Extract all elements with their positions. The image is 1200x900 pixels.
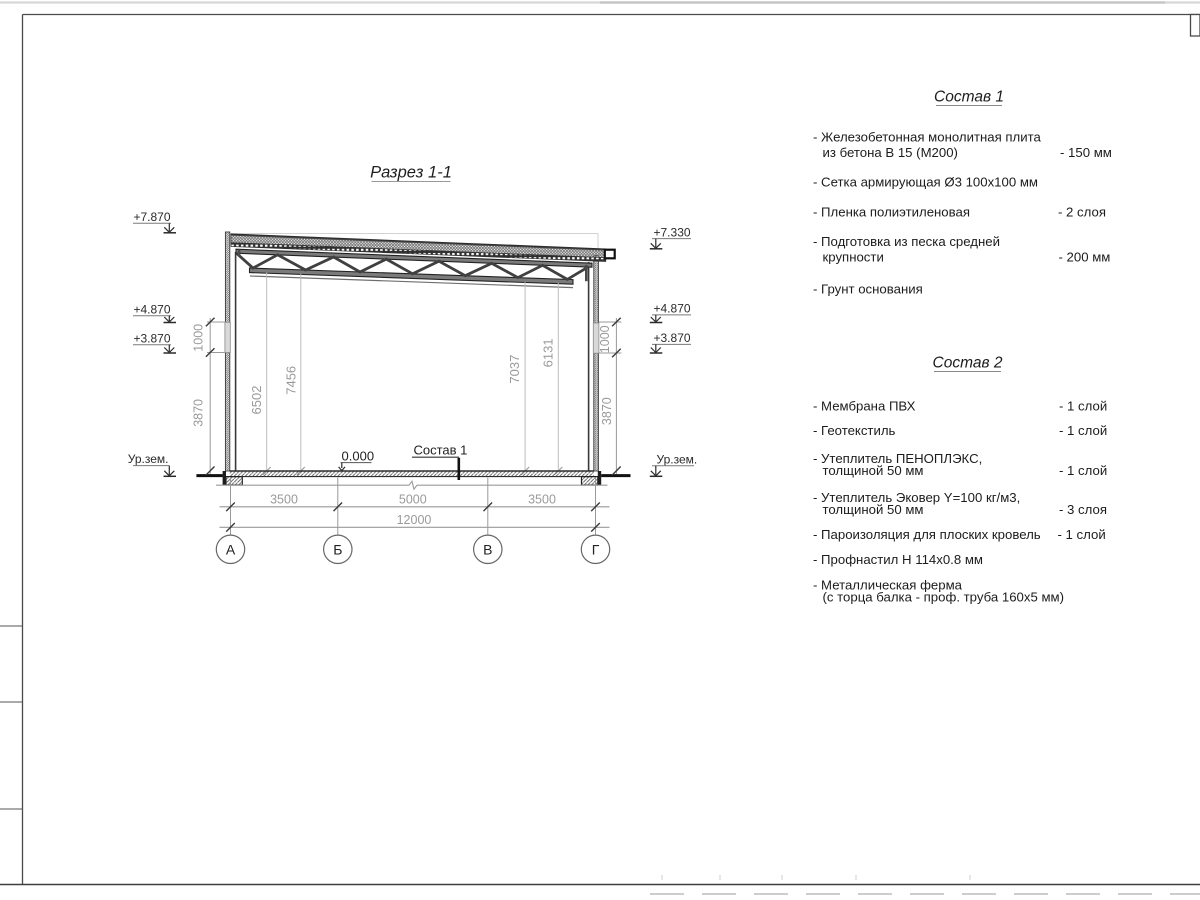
svg-text:1000: 1000 xyxy=(598,325,612,353)
svg-text:- Пленка полиэтиленовая: - Пленка полиэтиленовая xyxy=(813,205,970,220)
svg-text:Ур.зем.: Ур.зем. xyxy=(128,452,169,466)
svg-text:- Мембрана ПВХ: - Мембрана ПВХ xyxy=(813,398,916,413)
svg-text:В: В xyxy=(483,541,492,557)
svg-text:(с торца балка - проф. труба 1: (с торца балка - проф. труба 160х5 мм) xyxy=(823,590,1064,605)
svg-text:7456: 7456 xyxy=(283,366,298,395)
svg-text:+3.870: +3.870 xyxy=(654,331,691,345)
svg-text:- 1 слой: - 1 слой xyxy=(1059,463,1107,478)
svg-text:12000: 12000 xyxy=(397,513,432,527)
svg-text:+3.870: +3.870 xyxy=(133,332,170,346)
svg-text:из бетона В 15 (М200): из бетона В 15 (М200) xyxy=(823,145,958,160)
svg-text:+7.870: +7.870 xyxy=(133,210,170,224)
svg-text:- 200 мм: - 200 мм xyxy=(1059,250,1111,265)
svg-text:- Сетка армирующая Ø3 100х100: - Сетка армирующая Ø3 100х100 мм xyxy=(813,175,1038,190)
svg-text:- 3 слоя: - 3 слоя xyxy=(1059,502,1107,517)
svg-text:- 1 слой: - 1 слой xyxy=(1058,527,1106,542)
svg-text:+4.870: +4.870 xyxy=(133,303,170,317)
svg-text:толщиной 50 мм: толщиной 50 мм xyxy=(823,463,924,478)
svg-text:Б: Б xyxy=(333,541,342,557)
svg-text:- 2 слоя: - 2 слоя xyxy=(1058,205,1106,220)
svg-text:- Пароизоляция для плоских кро: - Пароизоляция для плоских кровель xyxy=(813,527,1041,542)
svg-text:6502: 6502 xyxy=(249,386,264,415)
svg-text:- 150 мм: - 150 мм xyxy=(1060,145,1112,160)
svg-text:- Геотекстиль: - Геотекстиль xyxy=(813,423,896,438)
svg-text:- 1 слой: - 1 слой xyxy=(1059,398,1107,413)
svg-text:+4.870: +4.870 xyxy=(654,302,691,316)
svg-text:Ур.зем.: Ур.зем. xyxy=(657,452,698,466)
svg-text:+7.330: +7.330 xyxy=(654,225,691,239)
svg-text:1000: 1000 xyxy=(191,324,205,352)
svg-text:Состав 1: Состав 1 xyxy=(414,442,468,457)
svg-text:Г: Г xyxy=(592,541,600,557)
svg-text:крупности: крупности xyxy=(823,250,884,265)
svg-text:0.000: 0.000 xyxy=(342,448,375,463)
svg-text:Состав 2: Состав 2 xyxy=(933,355,1003,372)
svg-text:Разрез 1-1: Разрез 1-1 xyxy=(370,164,452,182)
svg-text:6131: 6131 xyxy=(540,338,555,367)
svg-text:7037: 7037 xyxy=(507,355,522,384)
svg-text:А: А xyxy=(226,541,236,557)
svg-text:3500: 3500 xyxy=(270,493,298,507)
svg-text:- Грунт основания: - Грунт основания xyxy=(813,282,923,297)
svg-text:- Подготовка из песка средней: - Подготовка из песка средней xyxy=(813,234,1000,249)
svg-text:- Профнастил Н 114х0.8 мм: - Профнастил Н 114х0.8 мм xyxy=(813,552,983,567)
svg-text:3870: 3870 xyxy=(192,399,206,427)
svg-text:3500: 3500 xyxy=(528,493,556,507)
svg-text:- 1 слой: - 1 слой xyxy=(1059,423,1107,438)
svg-text:- Железобетонная монолитная п: - Железобетонная монолитная плита xyxy=(813,130,1042,145)
svg-text:Состав 1: Состав 1 xyxy=(934,89,1004,106)
svg-text:3870: 3870 xyxy=(600,397,614,425)
svg-text:толщиной 50 мм: толщиной 50 мм xyxy=(823,502,924,517)
svg-text:5000: 5000 xyxy=(399,493,427,507)
